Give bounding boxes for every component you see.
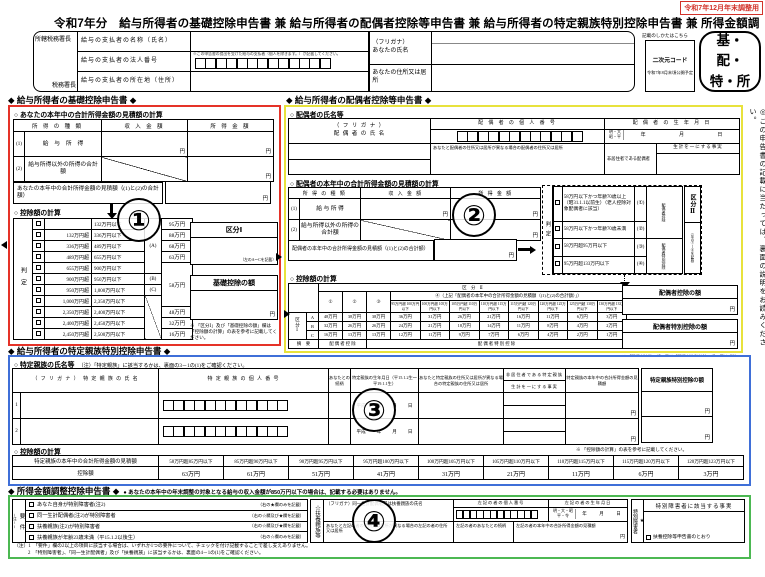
era-options[interactable]: 明・大昭・平: [607, 130, 624, 140]
tokutei-note: ※ 「控除額の計算」の表を参考に記載してください。: [576, 447, 687, 453]
checkbox[interactable]: [555, 244, 560, 249]
matrix-col-③: ③: [367, 292, 391, 313]
judge-checkbox-cell: [33, 307, 45, 318]
matrix-value: 38万円: [367, 313, 391, 322]
digit-cell[interactable]: [278, 58, 289, 69]
digit-cell[interactable]: [216, 58, 227, 69]
salary-revenue-input[interactable]: 円: [102, 132, 188, 157]
disability-fact-input[interactable]: 扶養控除等申告書のとおり: [644, 512, 744, 542]
kubun2-box: 区分Ⅱ （左の①～④を記載）: [684, 186, 701, 274]
matrix-value: 4万円: [568, 322, 598, 331]
qr-code-placeholder[interactable]: 二次元コード 令和7年8月末頃公開予定: [645, 40, 695, 92]
checkbox[interactable]: [36, 276, 41, 281]
col-income-type: 所 得 の 種 類: [289, 188, 361, 199]
judge-checkbox-cell: [33, 219, 45, 230]
row-no: (1): [14, 132, 25, 156]
checkbox[interactable]: [555, 261, 560, 266]
digit-cell[interactable]: [561, 131, 572, 142]
digit-cell[interactable]: [195, 58, 206, 69]
matrix-value: 14万円: [479, 322, 509, 331]
row-number: 1: [13, 393, 21, 419]
col-nonresident: 非居住者である特定親族: [504, 369, 565, 381]
judge-checkbox-cell: [554, 187, 563, 222]
digit-cell[interactable]: [289, 58, 300, 69]
matrix-value-row: C16万円13万円13万円12万円11万円9万円7万円6万円4万円2万円1万円: [289, 331, 627, 340]
step-3-marker: ③: [352, 388, 396, 432]
dependent-relation-input[interactable]: 左記の者のあなたとの続柄: [454, 522, 514, 543]
matrix-row-key: A: [307, 313, 319, 322]
arrow-right-icon: [276, 253, 282, 261]
calc-row-label: 控除額: [13, 467, 159, 480]
kubun1-box: 区分Ⅰ （左のA～Cを記載）: [190, 222, 278, 265]
digit-cell[interactable]: [236, 426, 247, 437]
matrix-kubun1-label: 区分Ⅰ: [289, 313, 307, 340]
dependent-number-input[interactable]: 左記の者の個人番号: [454, 500, 549, 521]
digit-cell[interactable]: [246, 426, 257, 437]
day-label: 日: [717, 131, 722, 138]
judge-amount: 95万円: [162, 219, 193, 230]
requirement-row: 扶養親族(注2)が特別障害者（右の☆欄及び★欄を記載）: [26, 522, 307, 533]
spouse-total-input[interactable]: 円: [434, 239, 517, 261]
yen-unit: 円: [435, 240, 516, 260]
spouse-income-row-2: (2)給与所得以外の所得の合計額 円: [289, 220, 541, 241]
matrix-value: 6万円: [509, 331, 539, 340]
checkbox[interactable]: [36, 265, 41, 270]
matrix-row-key: B: [307, 322, 319, 331]
matrix-value: 11万円: [420, 331, 450, 340]
basic-income-title: ○ あなたの本年中の合計所得金額の見積額の計算: [14, 109, 163, 119]
digit-cell[interactable]: [257, 400, 268, 411]
digit-cell[interactable]: [163, 426, 174, 437]
spouse-matrix-title: ○ 控除額の計算: [290, 273, 337, 283]
matrix-col-①: ①: [319, 292, 343, 313]
checkbox[interactable]: [29, 535, 34, 540]
tokutei-address-input[interactable]: [419, 419, 504, 445]
spouse-birth-input[interactable]: 年 月 日: [624, 131, 739, 138]
spouse-special-deduction-box: 配偶者特別控除の額 円: [622, 319, 738, 349]
tokutei-name-input[interactable]: [21, 393, 159, 419]
tokutei-deduction-input-2[interactable]: 円: [642, 417, 712, 442]
calc-amount: 63万円: [159, 467, 224, 480]
basic-judge-row: 2,400万円超2,450万円以下32万円: [14, 318, 193, 329]
spouse-number-boxes: [453, 131, 582, 142]
basic-income-row-2: (2)給与所得以外の所得の合計額 円: [14, 157, 274, 182]
judge-checkbox-cell: [33, 274, 45, 285]
yen-unit: 円: [566, 393, 638, 418]
judge-checkbox-cell: [33, 318, 45, 329]
checkbox[interactable]: [555, 200, 560, 205]
tokutei-address-input[interactable]: [419, 393, 504, 419]
yen-unit: 円: [729, 305, 735, 313]
spouse-deduction-input[interactable]: 円: [623, 299, 737, 314]
calc-amount: 41万円: [354, 467, 419, 480]
judge-amount: 58万円: [162, 263, 193, 307]
matrix-range: 105万円超 110万円以下: [450, 301, 480, 313]
digit-cell[interactable]: [194, 400, 205, 411]
matrix-summary-label: 摘 要: [289, 340, 319, 349]
dependent-birth-input[interactable]: 左記の者の生年月日 明・大・昭平・令 年月日: [549, 500, 627, 521]
calc-range: 105万円超110万円以下: [484, 456, 549, 467]
special-disability-label: ★特別障害者: [632, 500, 644, 542]
arrow-right-icon: [530, 246, 536, 254]
kubun1-input[interactable]: （左のA～Cを記載）: [191, 238, 277, 264]
digit-cell[interactable]: [320, 58, 331, 69]
tokutei-income-input[interactable]: 円: [566, 393, 639, 419]
digit-cell[interactable]: [257, 58, 268, 69]
print-marker-icon: [1, 241, 7, 249]
calc-range: 90万円超95万円以下: [289, 456, 354, 467]
judge-amount: 48万円: [162, 307, 193, 318]
your-address-field[interactable]: [432, 65, 634, 91]
judge-option-label: 95万円超133万円以下: [562, 256, 634, 273]
chosei-notes: （注）1 「要件」欄の2以上の項目に該当する場合は、いずれか1つの要件について、…: [14, 544, 311, 558]
your-info: （フリガナ） あなたの氏名 あなたの住所又は居所: [370, 32, 634, 91]
spouse-name-input[interactable]: [289, 160, 430, 174]
digit-cell[interactable]: [257, 426, 268, 437]
matrix-value: 48万円: [319, 313, 343, 322]
arrow-right-icon: [284, 310, 290, 318]
checkbox[interactable]: [36, 309, 41, 314]
your-address-label: あなたの住所又は居所: [372, 70, 429, 86]
digit-cell[interactable]: [509, 131, 520, 142]
spouse-judgement-table: 58万円以下かつ年齢70歳以上（昭31.1.1以前生）（老人控除対象配偶者に該当…: [553, 186, 683, 274]
digit-cell[interactable]: [205, 426, 216, 437]
spouse-special-deduction-input[interactable]: 円: [623, 333, 737, 348]
digit-cell[interactable]: [173, 426, 184, 437]
basic-deduction-amount-input[interactable]: 円: [191, 291, 277, 319]
matrix-value-row: B32万円26万円26万円24万円21万円18万円14万円11万円8万円4万円2…: [289, 322, 627, 331]
checkbox[interactable]: [29, 524, 34, 529]
yen-unit: 円: [188, 157, 273, 181]
yen-unit: 円: [166, 182, 270, 203]
judge-mark: [145, 296, 162, 340]
digit-cell[interactable]: [215, 426, 226, 437]
judge-range-lower: 950万円超: [45, 285, 92, 296]
digit-cell[interactable]: [237, 58, 248, 69]
tokutei-calc-amount-row: 控除額63万円61万円51万円41万円31万円21万円11万円6万円3万円: [13, 467, 744, 480]
spouse-living-input[interactable]: [657, 154, 739, 174]
matrix-subheader-row: ①②③④（上記「配偶者の本年中の合計所得金額の見積額（(1)と(2)の合計額）」…: [289, 292, 627, 301]
digit-cell[interactable]: [246, 400, 257, 411]
dependent-birth-label: 左記の者の生年月日: [549, 500, 627, 508]
tokutei-row-1: 1 平成年月日 円: [13, 393, 639, 419]
payer-number-label: 給与の支払者の法人番号: [78, 52, 190, 72]
judge-checkbox-cell: [33, 329, 45, 340]
header-block: 所轄税務署長 税務署長 給与の支払者の名称（氏名） 給与の支払者の法人番号 給与…: [33, 31, 635, 92]
digit-cell[interactable]: [268, 58, 279, 69]
spouse-salary-revenue-input[interactable]: 円: [361, 199, 451, 220]
yen-unit: 円: [269, 310, 275, 318]
yen-unit: 円: [188, 132, 273, 156]
judge-checkbox-cell: [33, 263, 45, 274]
tokutei-income-input[interactable]: 円: [566, 419, 639, 445]
digit-cell[interactable]: [299, 58, 310, 69]
digit-cell[interactable]: [467, 131, 478, 142]
spouse-deduction-matrix: 区 分 Ⅱ①②③④（上記「配偶者の本年中の合計所得金額の見積額（(1)と(2)の…: [288, 283, 627, 349]
matrix-range: 115万円超 120万円以下: [509, 301, 539, 313]
matrix-value: 26万円: [367, 322, 391, 331]
calc-range: 100万円超105万円以下: [419, 456, 484, 467]
year-label: 年: [641, 131, 646, 138]
tokutei-name-table: （ フ リ ガ ナ ） 特 定 親 族 の 氏 名 特 定 親 族 の 個 人 …: [12, 368, 639, 445]
judge-range-lower: 2,400万円超: [45, 318, 92, 329]
judge-label: 判定: [14, 219, 33, 340]
requirement-hint: （右の☆欄のみを記載）: [258, 534, 304, 540]
spouse-furigana-label: （ フ リ ガ ナ ）: [334, 123, 386, 131]
matrix-value: 21万円: [420, 322, 450, 331]
col-relation: あなたとの続柄: [329, 369, 351, 393]
tokutei-name-input[interactable]: [21, 419, 159, 445]
digit-cell[interactable]: [225, 400, 236, 411]
edition-note: 令和7年12月年末調整用: [680, 1, 763, 15]
judge-range-lower: 489万円超: [45, 252, 92, 263]
matrix-header-row: 区 分 Ⅱ: [289, 284, 627, 292]
dependent-income-input[interactable]: 左記の者の本年中の合計所得金額の見積額円: [514, 522, 627, 543]
checkbox[interactable]: [36, 254, 41, 259]
col-birth: 特定親族の生年月日（平15.1.2生～平19.1.1生）: [351, 369, 419, 393]
digit-cell[interactable]: [551, 131, 562, 142]
digit-cell[interactable]: [184, 400, 195, 411]
yen-unit: 円: [566, 419, 638, 444]
judge-checkbox-cell: [33, 296, 45, 307]
calc-range: 58万円超85万円以下: [159, 456, 224, 467]
requirement-label: 扶養親族(注2)が特別障害者: [37, 523, 247, 530]
matrix-corner: [289, 284, 319, 313]
basic-income-table: 所 得 の 種 類 収 入 金 額 所 得 金 額 (1)給 与 所 得 円 円…: [13, 119, 274, 182]
judge-option-label: 58万円以下かつ年齢70歳未満: [562, 221, 634, 238]
checkbox[interactable]: [36, 331, 41, 336]
basic-note: ※ 「区分Ⅰ」及び「基礎控除の額」欄は「控除額の計算」の表を参考に記載してくださ…: [190, 323, 278, 341]
digit-cell[interactable]: [531, 510, 538, 519]
arrow-connector: [110, 204, 113, 213]
digit-cell[interactable]: [163, 400, 174, 411]
matrix-value: 11万円: [509, 322, 539, 331]
payer-labels: 給与の支払者の名称（氏名） 給与の支払者の法人番号 給与の支払者の所在地（住所）: [78, 32, 190, 91]
judge-range-lower: 132万円超: [45, 230, 92, 241]
spouse-address-input[interactable]: あなたと配偶者の住所又は居所が異なる場合の配偶者の住所又は居所: [431, 144, 604, 151]
dependents-label: ☆扶養親族等: [311, 500, 324, 542]
digit-cell[interactable]: [540, 131, 551, 142]
basic-judge-row: 132万円超336万円以下88万円: [14, 230, 193, 241]
other-amount-input[interactable]: 円: [188, 157, 274, 182]
judge-mark: (④): [635, 256, 647, 273]
matrix-value: 8万円: [538, 322, 568, 331]
spouse-deduction-label: 配偶者控除の額: [623, 286, 737, 299]
yen-unit: 円: [704, 407, 710, 415]
checkbox[interactable]: [555, 226, 560, 231]
step-4-marker: ④: [352, 499, 396, 543]
requirements-box: 要 件(注1) あなた自身が特別障害者(注2)（右の★欄のみを記載）同一生計配偶…: [12, 499, 308, 543]
your-name-field[interactable]: [432, 32, 634, 64]
spouse-deduction-box: 配偶者控除の額 円: [622, 285, 738, 315]
judge-amount: 88万円: [162, 230, 193, 241]
qr-label: 二次元コード: [646, 55, 694, 64]
tokutei-number-input[interactable]: [159, 419, 329, 445]
judge-group-label: 配偶者控除: [646, 187, 682, 239]
judge-range-lower: 2,350万円超: [45, 307, 92, 318]
tokutei-number-input[interactable]: [159, 393, 329, 419]
calc-amount: 31万円: [419, 467, 484, 480]
digit-cell[interactable]: [457, 131, 468, 142]
dependent-number-boxes: [454, 508, 548, 519]
digit-cell[interactable]: [530, 131, 541, 142]
digit-cell[interactable]: [184, 426, 195, 437]
chosei-note-2: 2 「特別障害者」、「同一生計配偶者」及び「扶養親族」に該当するかは、裏面の4－…: [14, 551, 311, 558]
judge-range-upper: 655万円以下: [92, 252, 145, 263]
requirements-rows: あなた自身が特別障害者(注2)（右の★欄のみを記載）同一生計配偶者(注2)が特別…: [26, 500, 307, 542]
matrix-value: 11万円: [538, 313, 568, 322]
tokutei-relation-input[interactable]: [329, 393, 351, 419]
digit-cell[interactable]: [520, 131, 531, 142]
matrix-summary-row: 摘 要配 偶 者 控 除配 偶 者 特 別 控 除: [289, 340, 627, 349]
digit-cell[interactable]: [267, 426, 278, 437]
digit-cell[interactable]: [247, 58, 258, 69]
your-name-label: あなたの氏名: [372, 48, 429, 56]
calc-amount: 51万円: [289, 467, 354, 480]
digit-cell[interactable]: [277, 400, 288, 411]
chosei-note-1: （注）1 「要件」欄の2以上の項目に該当する場合は、いずれか1つの要件について、…: [14, 544, 311, 551]
spouse-furigana-input[interactable]: [289, 144, 430, 160]
judge-checkbox-cell: [33, 230, 45, 241]
checkbox[interactable]: [36, 221, 41, 226]
tax-office-cell: 所轄税務署長 税務署長: [34, 32, 78, 91]
judge-group-label: 配偶者特別控除: [646, 239, 682, 274]
kubun1-label: 区分Ⅰ: [191, 223, 277, 238]
era-options[interactable]: 明・大・昭平・令: [551, 509, 576, 519]
col-nonresident-living: 非居住者である特定親族 生計を一にする事実: [504, 369, 566, 393]
matrix-value: 7万円: [479, 331, 509, 340]
basic-judgement-table: 判定132万円以下(A)95万円132万円超336万円以下88万円336万円超4…: [13, 218, 193, 340]
checkbox[interactable]: [29, 502, 34, 507]
spouse-judge-row: 58万円超95万円以下(③)配偶者特別控除: [554, 239, 683, 256]
tokutei-deduction-label: 特定親族特別控除の額: [642, 369, 712, 392]
checkbox[interactable]: [36, 320, 41, 325]
checkbox[interactable]: [36, 298, 41, 303]
digit-cell[interactable]: [499, 131, 510, 142]
judge-mark: (C): [145, 285, 162, 296]
spouse-address-label: あなたと配偶者の住所又は居所が異なる場合の配偶者の住所又は居所: [431, 144, 604, 151]
payer-fields: ※この申告書の提出を受けた給与の支払者（個人を除きます。）が記載してください。: [190, 32, 368, 91]
payer-number-boxes: [191, 58, 368, 69]
judge-range-lower: 336万円超: [45, 241, 92, 252]
checkbox[interactable]: [29, 513, 34, 518]
matrix-range: 100万円超 105万円以下: [420, 301, 450, 313]
qr-guide-text: 記載のしかたはこちら: [642, 33, 688, 39]
matrix-value: 31万円: [420, 313, 450, 322]
tokutei-nonresident-living-input[interactable]: [504, 419, 566, 445]
checkbox[interactable]: [36, 287, 41, 292]
checkbox[interactable]: [646, 535, 651, 540]
special-disability-box: ★特別障害者 特別障害者に該当する事実 扶養控除等申告書のとおり: [631, 499, 745, 543]
digit-cell[interactable]: [267, 400, 278, 411]
tokutei-deduction-input-1[interactable]: 円: [642, 392, 712, 417]
tokutei-nonresident-living-input[interactable]: [504, 393, 566, 419]
digit-cell[interactable]: [309, 58, 320, 69]
payer-address-field[interactable]: [191, 72, 368, 91]
salary-amount-input[interactable]: 円: [188, 132, 274, 157]
digit-cell[interactable]: [194, 426, 205, 437]
judge-range-upper: 900万円以下: [92, 263, 145, 274]
tokutei-relation-input[interactable]: [329, 419, 351, 445]
basic-judge-row: 655万円超900万円以下58万円: [14, 263, 193, 274]
dependent-income-label: 左記の者の本年中の合計所得金額の見積額: [516, 523, 596, 528]
tokutei-calc-table: 特定親族の本年中の合計所得金額の見積額58万円超85万円以下85万円超90万円以…: [12, 455, 744, 480]
basic-judge-row: 336万円超489万円以下68万円: [14, 241, 193, 252]
requirement-hint: （右の★欄のみを記載）: [258, 502, 304, 508]
judge-checkbox-cell: [554, 221, 563, 238]
calc-range: 110万円超115万円以下: [549, 456, 614, 467]
basic-total-input[interactable]: 円: [165, 181, 271, 204]
digit-cell[interactable]: [205, 400, 216, 411]
spouse-special-deduction-label: 配偶者特別控除の額: [623, 320, 737, 333]
payer-address-label: 給与の支払者の所在地（住所）: [78, 72, 190, 91]
digit-cell[interactable]: [173, 400, 184, 411]
matrix-value: 32万円: [319, 322, 343, 331]
matrix-row-key: C: [307, 331, 319, 340]
calc-range: 95万円超100万円以下: [354, 456, 419, 467]
payer-name-field[interactable]: [191, 32, 368, 52]
digit-cell[interactable]: [226, 58, 237, 69]
row-label: 給与所得以外の所得の合計額: [25, 157, 101, 181]
tokutei-calc-header-row: 特定親族の本年中の合計所得金額の見積額58万円超85万円以下85万円超90万円以…: [13, 456, 744, 467]
digit-cell[interactable]: [572, 131, 583, 142]
spouse-income-table: 所 得 の 種 類 収 入 金 額 所 得 金 額 (1)給 与 所 得 円 円…: [288, 187, 541, 241]
matrix-value: 2万円: [568, 331, 598, 340]
arrow-connector: [518, 248, 530, 251]
checkbox[interactable]: [36, 243, 41, 248]
payer-number-field[interactable]: ※この申告書の提出を受けた給与の支払者（個人を除きます。）が記載してください。: [191, 52, 368, 72]
digit-cell[interactable]: [478, 131, 489, 142]
calc-amount: 61万円: [224, 467, 289, 480]
digit-cell[interactable]: [277, 426, 288, 437]
matrix-value: 21万円: [479, 313, 509, 322]
judge-amount: 32万円: [162, 318, 193, 329]
spouse-nonresident-cell[interactable]: 非居住者である配偶者: [605, 144, 657, 174]
digit-cell[interactable]: [205, 58, 216, 69]
tokutei-deduction-box: 特定親族特別控除の額 円 円: [641, 368, 713, 443]
judge-checkbox-cell: [33, 252, 45, 263]
kubun2-label: 区分Ⅱ: [685, 187, 700, 223]
checkbox[interactable]: [36, 232, 41, 237]
matrix-summary-2: 配 偶 者 特 別 控 除: [367, 340, 627, 349]
row-label: 給与所得以外の所得の合計額: [300, 220, 360, 240]
digit-cell[interactable]: [236, 400, 247, 411]
payer-name-label: 給与の支払者の名称（氏名）: [78, 32, 190, 52]
kubun2-input[interactable]: （左の①～④を記載）: [685, 223, 700, 273]
spouse-birth-label: 配 偶 者 の 生 年 月 日: [605, 119, 739, 130]
digit-cell[interactable]: [215, 400, 226, 411]
digit-cell[interactable]: [488, 131, 499, 142]
matrix-value: 38万円: [343, 313, 367, 322]
furigana-label: （フリガナ）: [372, 40, 429, 48]
col-income-type: 所 得 の 種 類: [14, 120, 102, 132]
judge-range-upper: 2,350万円以下: [92, 296, 145, 307]
digit-cell[interactable]: [225, 426, 236, 437]
month-label: 月: [679, 131, 684, 138]
requirement-label: 扶養親族が年齢23歳未満（平15.1.2以後生）: [37, 534, 255, 541]
judge-range-lower: 655万円超: [45, 263, 92, 274]
diagonal-blank-cell: [361, 220, 451, 241]
your-furigana-field[interactable]: [432, 32, 634, 44]
qr-note: 令和7年8月末頃公開予定: [646, 70, 694, 75]
row-no: (2): [289, 220, 300, 240]
matrix-range: 110万円超 115万円以下: [479, 301, 509, 313]
disability-fact-label: 特別障害者に該当する事実: [644, 500, 744, 512]
judge-range-upper: 489万円以下: [92, 241, 145, 252]
matrix-value: 36万円: [391, 313, 421, 322]
step-2-marker: ②: [452, 193, 496, 237]
col-tokutei-name: （ フ リ ガ ナ ） 特 定 親 族 の 氏 名: [13, 369, 159, 393]
